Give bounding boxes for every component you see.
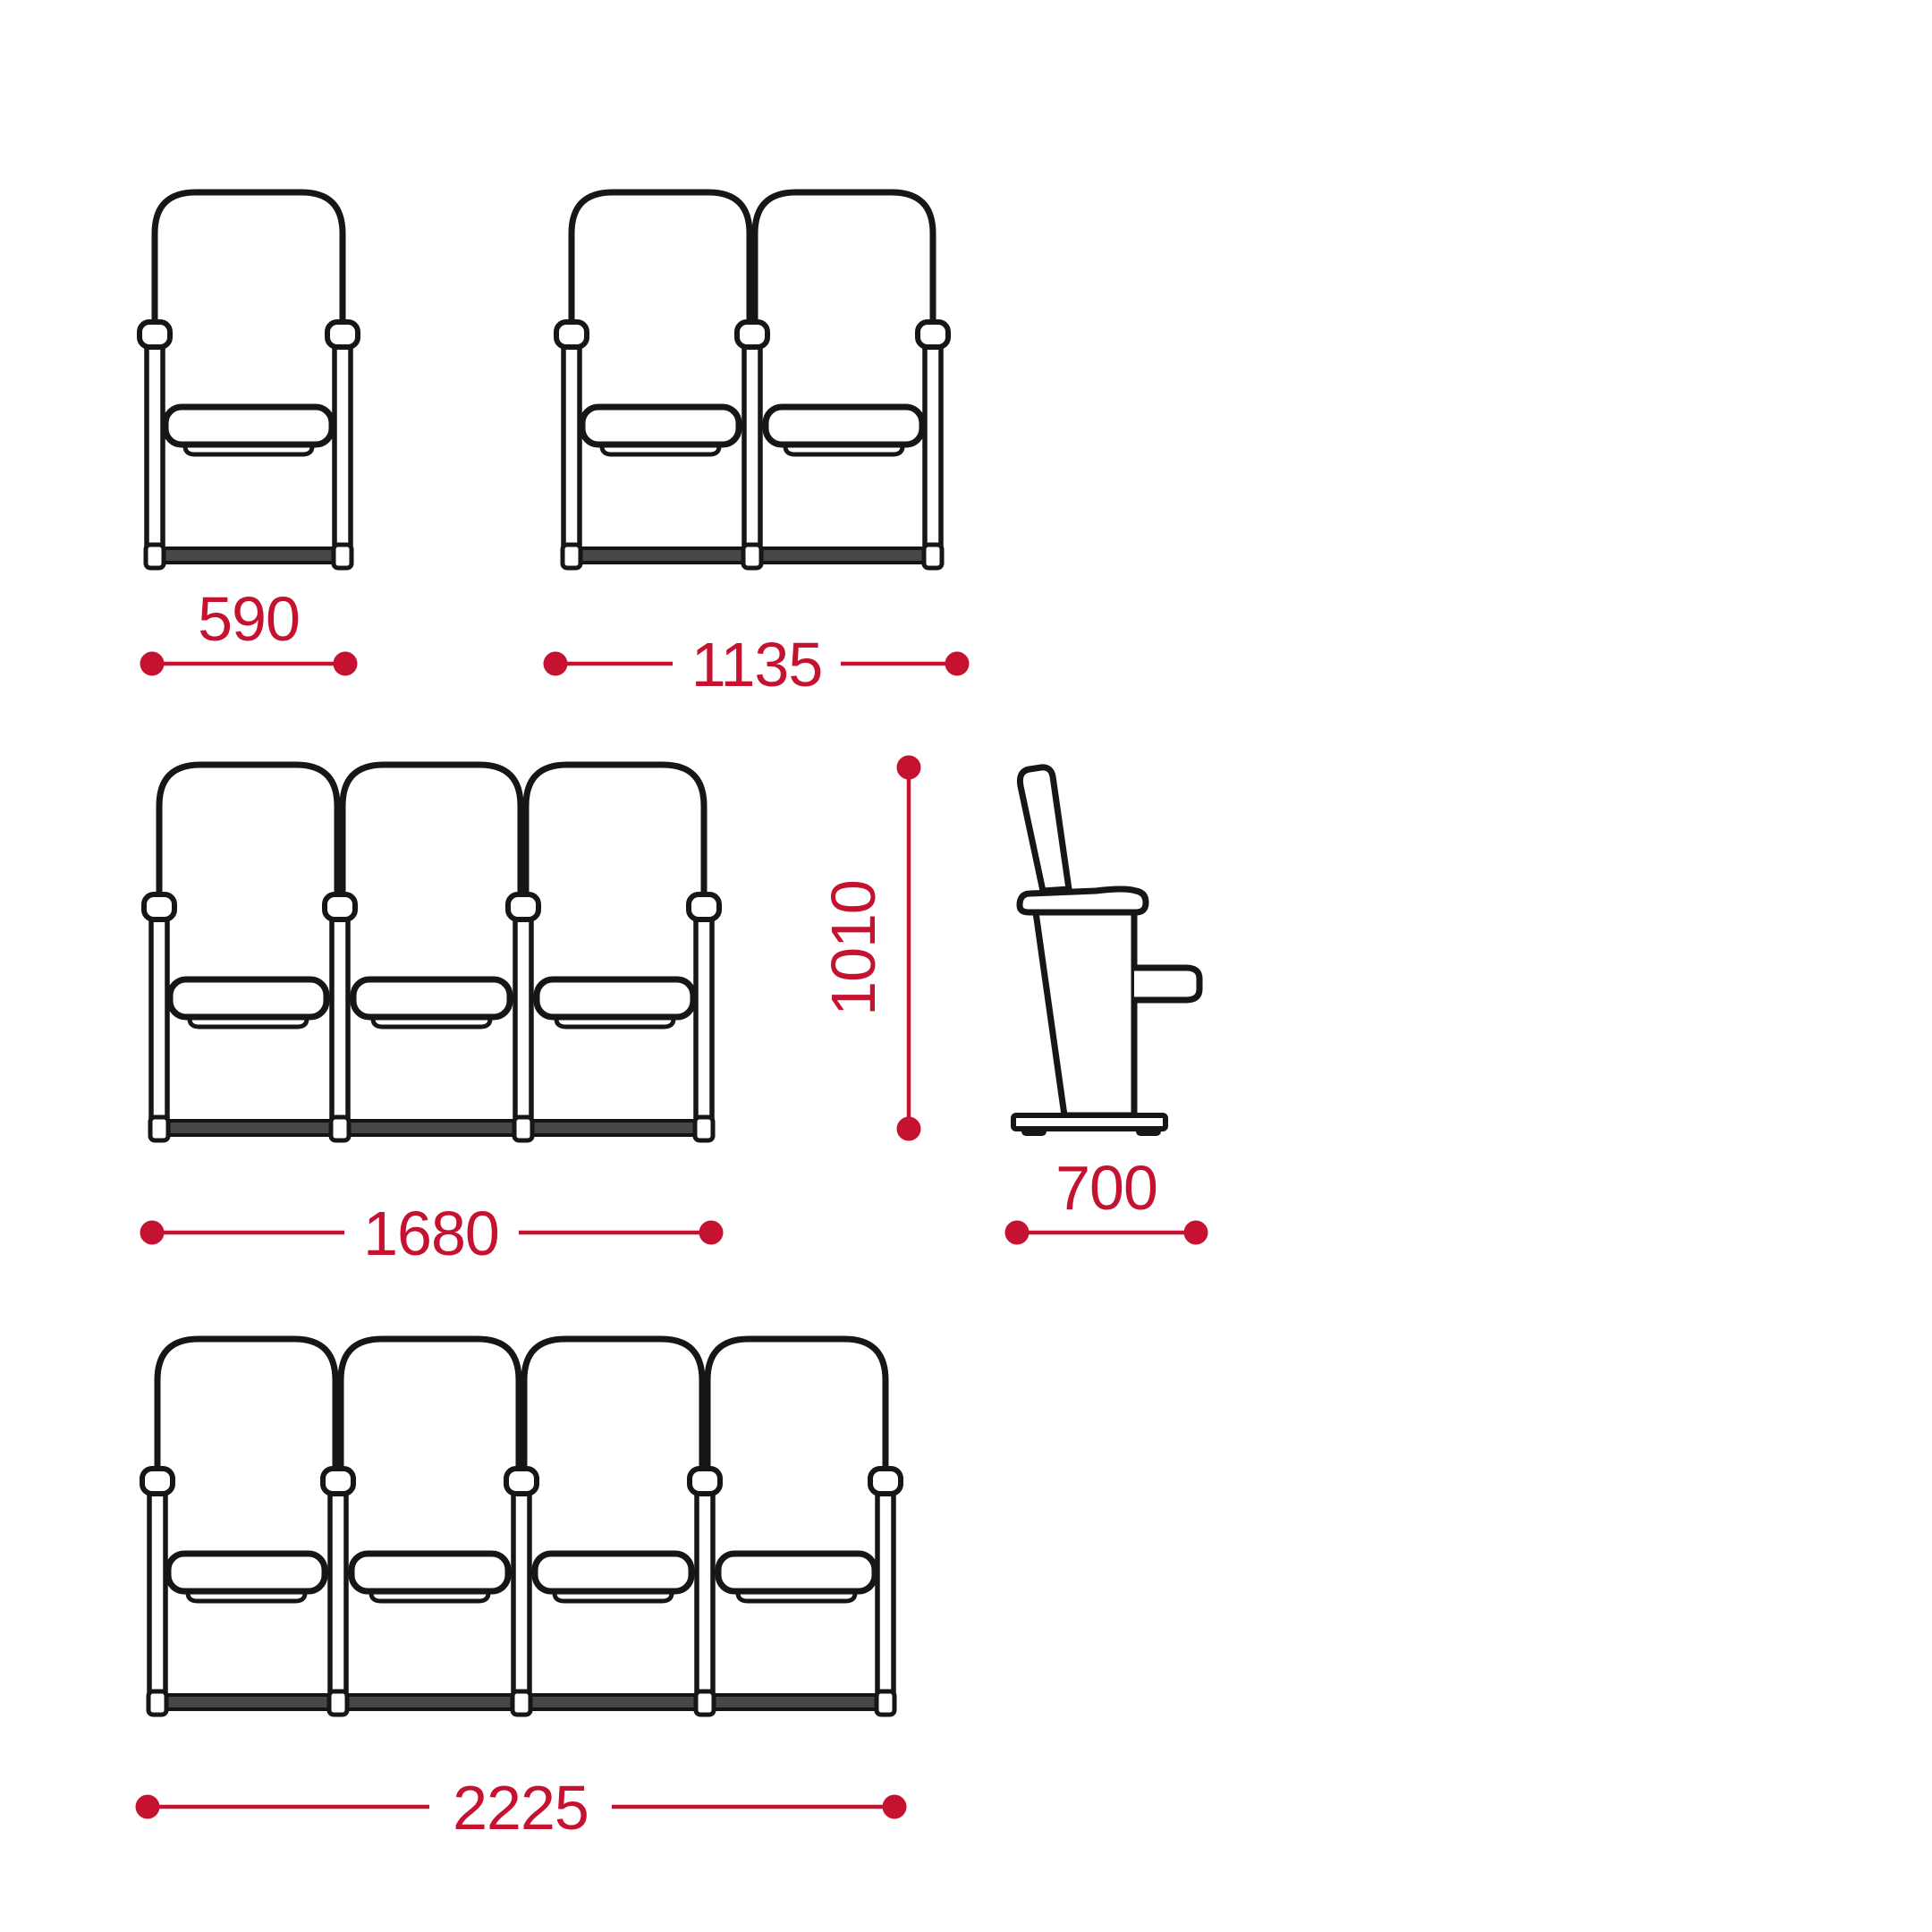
dimension-endpoint-dot bbox=[699, 1221, 724, 1245]
seat-pad bbox=[535, 1554, 691, 1591]
seat-pad bbox=[352, 1554, 508, 1591]
dimension-label-700: 700 bbox=[1055, 1153, 1157, 1223]
seat-pad bbox=[168, 1554, 325, 1591]
backrest-panel bbox=[343, 765, 521, 984]
post-foot bbox=[148, 1691, 166, 1715]
backrest-panel bbox=[157, 1339, 335, 1558]
dimension-endpoint-dot bbox=[1005, 1221, 1030, 1245]
dimension-endpoint-dot bbox=[897, 756, 921, 780]
dimension-label-1680: 1680 bbox=[363, 1199, 499, 1268]
backrest-panel bbox=[755, 192, 933, 411]
seat-pad bbox=[718, 1554, 875, 1591]
seat-pad bbox=[165, 407, 332, 445]
seat-pad bbox=[353, 979, 510, 1017]
post-foot bbox=[696, 1691, 714, 1715]
backrest-panel bbox=[341, 1339, 519, 1558]
chair-front-1seat bbox=[140, 192, 358, 568]
post-foot bbox=[563, 545, 580, 568]
dimension-endpoint-dot bbox=[140, 652, 165, 676]
seat-pad bbox=[766, 407, 922, 445]
post-foot bbox=[513, 1691, 530, 1715]
dimension-height-1010: 1010 bbox=[818, 756, 921, 1141]
dimension-endpoint-dot bbox=[140, 1221, 165, 1245]
post-foot bbox=[695, 1117, 713, 1140]
backrest-panel bbox=[708, 1339, 885, 1558]
diagram-canvas: 590 1135 1680 1010 700 2225 bbox=[0, 0, 1932, 1932]
dimension-endpoint-dot bbox=[897, 1117, 921, 1141]
post-foot bbox=[743, 545, 761, 568]
post-foot bbox=[331, 1117, 349, 1140]
side-base-foot bbox=[1021, 1127, 1046, 1136]
side-base-plate bbox=[1013, 1115, 1165, 1129]
chair-side-view bbox=[1013, 767, 1199, 1136]
post-foot bbox=[514, 1117, 532, 1140]
backrest-panel bbox=[526, 765, 704, 984]
side-base-foot bbox=[1136, 1127, 1161, 1136]
post-foot bbox=[150, 1117, 168, 1140]
dimension-label-2225: 2225 bbox=[453, 1773, 589, 1843]
side-seat-slab bbox=[1020, 889, 1146, 912]
dimension-endpoint-dot bbox=[883, 1795, 907, 1819]
seat-pad bbox=[582, 407, 739, 445]
backrest-panel bbox=[524, 1339, 702, 1558]
seat-pad bbox=[537, 979, 693, 1017]
post-foot bbox=[146, 545, 164, 568]
backrest-panel bbox=[159, 765, 337, 984]
backrest-panel bbox=[572, 192, 750, 411]
dimension-label-1010: 1010 bbox=[818, 880, 888, 1016]
dimension-endpoint-dot bbox=[945, 652, 970, 676]
chair-front-4seat bbox=[142, 1339, 901, 1715]
dimension-endpoint-dot bbox=[1184, 1221, 1208, 1245]
seating-dimension-diagram: 590 1135 1680 1010 700 2225 bbox=[0, 0, 1932, 1932]
dimension-width-1680: 1680 bbox=[140, 1199, 724, 1268]
side-armrest bbox=[1134, 968, 1199, 1000]
dimension-width-2225: 2225 bbox=[136, 1773, 907, 1843]
dimension-width-1135: 1135 bbox=[544, 630, 970, 699]
post-foot bbox=[334, 545, 352, 568]
dimension-label-1135: 1135 bbox=[691, 630, 823, 699]
chair-front-2seat bbox=[556, 192, 948, 568]
post-foot bbox=[329, 1691, 347, 1715]
dimension-label-590: 590 bbox=[198, 584, 300, 654]
post-foot bbox=[924, 545, 942, 568]
dimension-width-590: 590 bbox=[140, 584, 358, 676]
chair-front-3seat bbox=[144, 765, 719, 1140]
dimension-depth-700: 700 bbox=[1005, 1153, 1208, 1245]
dimension-endpoint-dot bbox=[136, 1795, 160, 1819]
backrest-panel bbox=[155, 192, 343, 411]
seat-pad bbox=[170, 979, 326, 1017]
base-rail bbox=[149, 548, 348, 563]
dimension-endpoint-dot bbox=[334, 652, 358, 676]
side-backrest bbox=[1020, 767, 1069, 891]
post-foot bbox=[877, 1691, 894, 1715]
side-seat-body bbox=[1036, 912, 1134, 1115]
base-rail bbox=[154, 1121, 709, 1135]
dimension-endpoint-dot bbox=[544, 652, 568, 676]
